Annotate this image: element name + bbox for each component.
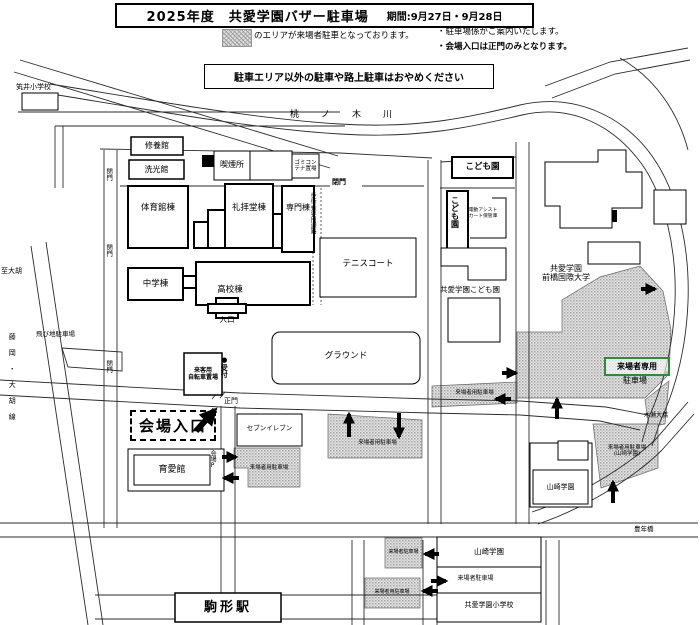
label-to-ogo: 至大胡 [1, 267, 22, 275]
label-tennis-court: テニスコート [320, 258, 416, 270]
label-ground: グラウンド [272, 350, 420, 362]
label-honen-bridge: 豊年橋 [634, 526, 654, 534]
label-gym: 体育館棟 [128, 202, 188, 214]
label-kaijo-p: 会場P [209, 450, 216, 488]
label-junior-high: 中学棟 [128, 278, 183, 290]
label-kise-bridge: 木瀬大橋 [644, 412, 668, 419]
legend-bullet-1: ・駐車場係がご案内いたします。 [437, 27, 564, 37]
label-komagata-station: 駒形駅 [175, 596, 281, 620]
gate-closed-left-3: 閉門 [104, 360, 112, 382]
label-smoking-area: 喫煙所 [214, 158, 250, 172]
label-shuyokan: 修養館 [131, 139, 183, 153]
label-parking-ground-south: 来場者用駐車場 [335, 438, 420, 449]
label-utsuboi-elementary: 笂井小学校 [16, 83, 51, 91]
label-main-gate: 正門 [224, 397, 238, 405]
label-river: 桃ノ木川 [290, 110, 414, 121]
gate-closed-top: 閉門 [332, 178, 346, 186]
label-parking-yamazaki: 来場者用駐車場 (山崎学園) [596, 440, 658, 462]
label-kodomoen-full: 共愛学園こども園 [440, 286, 500, 295]
label-seven-eleven: セブンイレブン [237, 422, 302, 436]
label-route-name: 藤岡・大胡線 [8, 333, 16, 498]
map-canvas [0, 0, 700, 625]
warning-text: 駐車エリア以外の駐車や路上駐車はおやめください [234, 69, 464, 84]
label-chapel: 礼拝堂棟 [225, 202, 273, 214]
label-university: 共愛学園 前橋国際大学 [518, 260, 614, 286]
label-senkokan: 洗光館 [129, 162, 184, 177]
label-reception: ●受付 [220, 356, 228, 394]
label-yamazaki-block: 山崎学園 [437, 546, 541, 559]
legend-area-note: のエリアが来場者駐車となっております。 [254, 31, 414, 41]
label-kodomoen-sign: こども園 [452, 159, 513, 176]
legend-hatch-swatch [222, 29, 252, 47]
label-entrance: 入口 [212, 315, 242, 325]
label-main-parking-1: 来場者専用 [617, 361, 657, 372]
gate-closed-left-2: 閉門 [104, 244, 112, 266]
label-senior-high: 高校棟 [200, 284, 260, 296]
parking-map-page: 2025年度 共愛学園バザー駐車場 期間:9月27日・9月28日 のエリアが来場… [0, 0, 700, 625]
venue-entrance-callout: 会場入口 [130, 410, 216, 441]
label-kodomoen-vertical: こども園 [450, 196, 459, 260]
label-parking-center-strip: 来場者用駐車場 [432, 388, 517, 399]
label-ikueikan: 育愛館 [134, 462, 210, 478]
label-main-parking-2: 駐車場 [604, 375, 666, 387]
title-period: 期間:9月27日・9月28日 [387, 8, 503, 23]
label-parking-south-small: 来場者駐車場 [384, 547, 423, 559]
parking-ground-south [328, 414, 422, 458]
legend-bullet-2: ・会場入口は正門のみとなります。 [437, 42, 572, 52]
label-parking-south-west: 来場者用駐車場 [364, 587, 420, 599]
label-yamazaki-box: 山崎学園 [533, 472, 588, 502]
main-parking-title-box: 来場者専用 [604, 357, 670, 376]
label-kyoai-elementary: 共愛学園小学校 [437, 599, 541, 612]
label-tobichi-parking: 飛び地駐車場 [36, 331, 75, 339]
guard-post-mark [202, 155, 214, 167]
title-main: 2025年度 共愛学園バザー駐車場 [147, 6, 369, 25]
label-garbage-container: ゴミコン テナ置場 [292, 156, 319, 176]
label-parking-south-mid: 来場者駐車場 [437, 572, 514, 585]
label-bicycle-parking: 来客用 自転車置場 [184, 357, 222, 391]
label-cart-storage: 電動アシスト カート保管庫 [464, 204, 502, 224]
label-parking-ikuei-side: 来場者用駐車場 [238, 463, 300, 474]
warning-banner: 駐車エリア以外の駐車や路上駐車はおやめください [204, 64, 494, 89]
gate-closed-left-1: 閉門 [104, 168, 112, 190]
label-walkway: 歩行者専用通路 [309, 192, 316, 304]
page-title: 2025年度 共愛学園バザー駐車場 期間:9月27日・9月28日 [115, 3, 534, 28]
